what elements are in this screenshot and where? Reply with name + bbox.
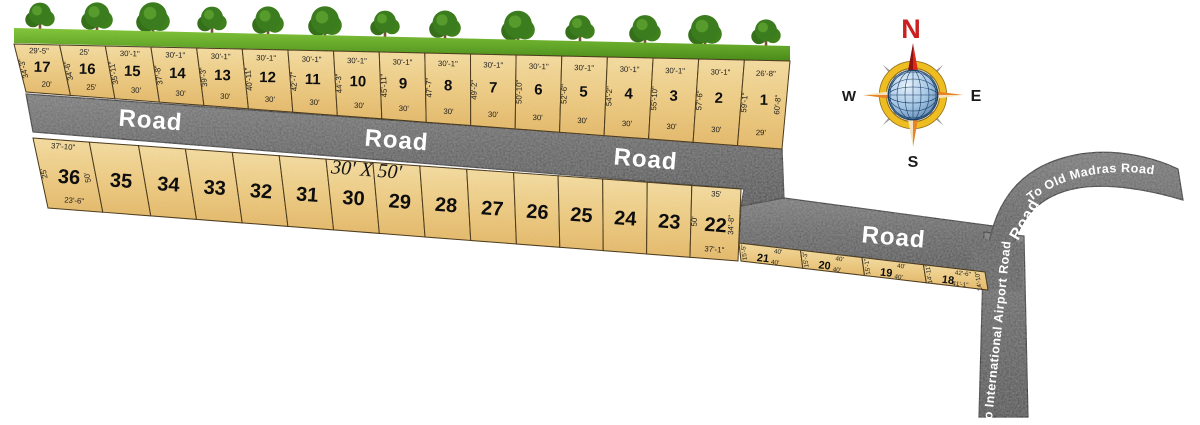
plot-5-left-dim: 52'-6" (559, 84, 569, 104)
plot-7-number: 7 (489, 79, 498, 96)
plot-7-top-dim: 30'-1" (483, 60, 503, 69)
plot-4-bottom-dim: 30' (622, 119, 633, 128)
compass-east-label: E (971, 88, 982, 105)
plot-20-number: 20 (818, 259, 832, 272)
plot-2-bottom-dim: 30' (711, 125, 722, 134)
plot-9-top-dim: 30'-1" (392, 57, 412, 66)
plot-13-bottom-dim: 30' (220, 92, 231, 101)
plot-18-bottom-dim: 41'-1" (952, 280, 969, 289)
plot-21-number: 21 (756, 252, 770, 265)
plot-12-number: 12 (259, 69, 276, 86)
plot-16-top-dim: 25' (79, 48, 90, 57)
plot-10-left-dim: 44'-3" (334, 73, 344, 94)
plot-11-top-dim: 30'-1" (302, 55, 322, 64)
plot-15-bottom-dim: 30' (131, 86, 142, 95)
plot-23-number: 23 (657, 210, 681, 234)
plot-10-top-dim: 30'-1" (347, 56, 367, 65)
plot-16-number: 16 (79, 61, 96, 78)
plot-layout-map: Road Road Road Road Road To Old Madras R… (0, 0, 1200, 425)
plot-9-left-dim: 45'-11" (379, 73, 389, 97)
plot-32-number: 32 (249, 180, 273, 204)
plot-15-top-dim: 30'-1" (120, 49, 140, 58)
plot-8-top-dim: 30'-1" (438, 59, 458, 68)
plot-1-right-dim: 60'-8" (772, 94, 783, 115)
plot-21-bottom-dim: 40' (771, 259, 780, 267)
plot-7-bottom-dim: 30' (488, 110, 499, 119)
plot-12-bottom-dim: 30' (265, 95, 276, 104)
plot-2-number: 2 (714, 90, 723, 107)
plot-24-number: 24 (613, 207, 638, 231)
plot-15-number: 15 (124, 63, 141, 80)
plot-1-top-dim: 26'-8" (756, 69, 776, 78)
plot-1-bottom-dim: 29' (756, 128, 767, 137)
plot-6-left-dim: 50'-10" (514, 79, 523, 104)
plot-1-left-dim: 59'-1" (739, 92, 750, 113)
plot-10-number: 10 (349, 73, 366, 90)
plot-3-number: 3 (669, 88, 678, 105)
plot-3-bottom-dim: 30' (666, 122, 677, 131)
compass-south-label: S (908, 154, 919, 171)
plot-1-number: 1 (760, 92, 769, 109)
plot-3-left-dim: 55'-10" (649, 86, 659, 111)
plot-5-top-dim: 30'-1" (574, 63, 594, 72)
road-label-3: Road (613, 143, 679, 175)
plot-8-number: 8 (444, 77, 453, 94)
plot-16-bottom-dim: 25' (86, 83, 97, 92)
plot-11-bottom-dim: 30' (309, 98, 320, 107)
plot-27-number: 27 (480, 197, 504, 221)
plot-19-number: 19 (879, 267, 893, 280)
plot-22-bottom-dim: 37'-1" (704, 244, 725, 254)
plot-31-number: 31 (295, 183, 319, 207)
plot-13-number: 13 (214, 67, 231, 84)
plot-20-top-dim: 40' (835, 255, 844, 263)
plot-30-number: 30 (342, 187, 366, 211)
plot-17-top-dim: 29'-5" (29, 46, 49, 55)
plot-36-top-dim: 37'-10" (51, 141, 76, 152)
plot-11-left-dim: 42'-7" (289, 71, 300, 92)
plot-29-number: 29 (388, 190, 412, 214)
plot-10-bottom-dim: 30' (354, 101, 365, 110)
plot-8-bottom-dim: 30' (443, 107, 454, 116)
plot-9-number: 9 (399, 75, 408, 92)
plot-21-top-dim: 40' (774, 248, 783, 256)
compass-north-label: N (901, 14, 921, 44)
road-label-2: Road (364, 125, 430, 157)
plot-36-number: 36 (57, 166, 81, 190)
plot-7-left-dim: 49'-2" (470, 80, 479, 100)
plot-9-bottom-dim: 30' (399, 104, 410, 113)
plot-11-number: 11 (305, 71, 321, 88)
plot-22-right-dim: 34'-8" (726, 215, 736, 235)
plot-2-left-dim: 57'-6" (694, 90, 704, 111)
plot-17-bottom-dim: 20' (41, 80, 52, 89)
plot-14-number: 14 (169, 65, 187, 82)
road-label-1: Road (118, 105, 184, 137)
compass-rose: N E S W (842, 14, 982, 171)
plot-14-bottom-dim: 30' (175, 89, 186, 98)
plot-13-top-dim: 30'-1" (211, 52, 231, 61)
plot-22-left-dim: 50' (690, 216, 699, 227)
plot-14-top-dim: 30'-1" (165, 50, 185, 59)
plot-20-bottom-dim: 40' (832, 266, 841, 274)
plot-25-number: 25 (570, 204, 594, 228)
plot-26-number: 26 (526, 201, 550, 225)
plot-35-number: 35 (109, 170, 133, 194)
plot-5-number: 5 (579, 84, 588, 101)
plot-4-left-dim: 54'-2" (604, 86, 614, 106)
plot-6-bottom-dim: 30' (532, 113, 543, 122)
plot-3-top-dim: 30'-1" (665, 66, 685, 75)
plot-34-number: 34 (157, 173, 182, 197)
plot-6-number: 6 (534, 81, 543, 98)
plot-4-number: 4 (624, 86, 633, 103)
plot-8-left-dim: 47'-7" (424, 77, 433, 97)
road-label-middle: Road (861, 221, 927, 253)
plot-4-top-dim: 30'-1" (620, 65, 640, 74)
plot-22-number: 22 (704, 214, 728, 238)
plot-36-bottom-dim: 23'-6" (64, 195, 85, 205)
compass-west-label: W (842, 88, 857, 105)
plot-5-bottom-dim: 30' (577, 116, 588, 125)
plot-17-number: 17 (34, 59, 51, 76)
plot-19-top-dim: 40' (897, 263, 906, 271)
layout-canvas: Road Road Road Road Road To Old Madras R… (0, 0, 1200, 425)
plot-19-bottom-dim: 40' (894, 273, 903, 281)
plot-22-top-dim: 35' (711, 189, 722, 199)
plot-28-number: 28 (434, 194, 458, 218)
plot-6-top-dim: 30'-1" (529, 62, 549, 71)
plot-2-top-dim: 30'-1" (710, 67, 730, 76)
plot-12-top-dim: 30'-1" (256, 53, 276, 62)
plot-33-number: 33 (203, 177, 227, 201)
